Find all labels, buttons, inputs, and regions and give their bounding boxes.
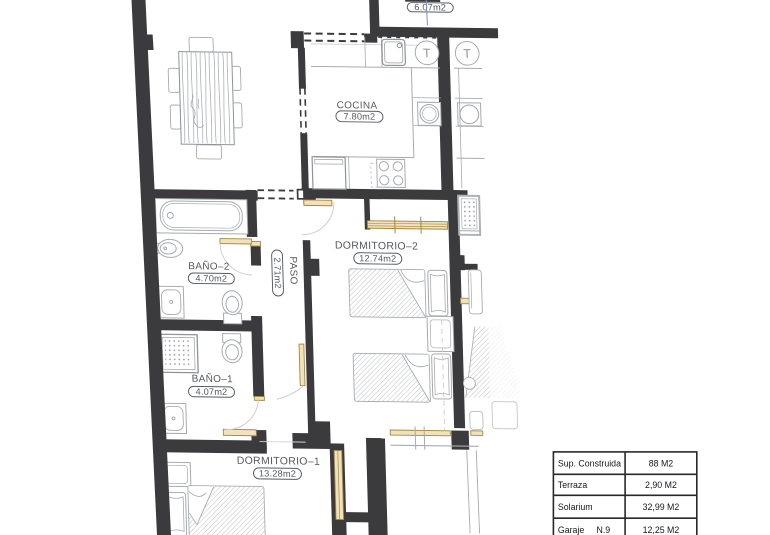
svg-text:12,25 M2: 12,25 M2 — [643, 525, 680, 535]
svg-text:13.28m2: 13.28m2 — [259, 468, 296, 478]
svg-text:DORMITORIO–2: DORMITORIO–2 — [335, 240, 419, 253]
svg-text:Terraza: Terraza — [558, 480, 587, 490]
svg-text:PASO: PASO — [287, 256, 299, 284]
svg-text:Garaje N.9: Garaje N.9 — [558, 525, 610, 535]
svg-text:4.70m2: 4.70m2 — [195, 273, 227, 283]
svg-text:Solarium: Solarium — [558, 502, 593, 512]
svg-text:Sup. Construida: Sup. Construida — [558, 458, 621, 468]
svg-text:T: T — [423, 46, 431, 60]
svg-text:2,90 M2: 2,90 M2 — [645, 480, 677, 490]
svg-text:2.71m2: 2.71m2 — [272, 257, 283, 288]
svg-text:4.07m2: 4.07m2 — [195, 387, 227, 397]
svg-text:DORMITORIO–1: DORMITORIO–1 — [237, 455, 321, 468]
svg-text:T: T — [463, 47, 471, 61]
svg-text:88 M2: 88 M2 — [649, 458, 674, 468]
svg-text:6.07m2: 6.07m2 — [414, 2, 446, 12]
svg-text:BAÑO–2: BAÑO–2 — [188, 259, 230, 273]
svg-text:7.80m2: 7.80m2 — [343, 111, 375, 121]
svg-text:12.74m2: 12.74m2 — [359, 253, 396, 263]
svg-text:BAÑO–1: BAÑO–1 — [192, 372, 234, 386]
svg-text:32,99 M2: 32,99 M2 — [643, 502, 680, 512]
svg-text:COCINA: COCINA — [337, 100, 378, 112]
